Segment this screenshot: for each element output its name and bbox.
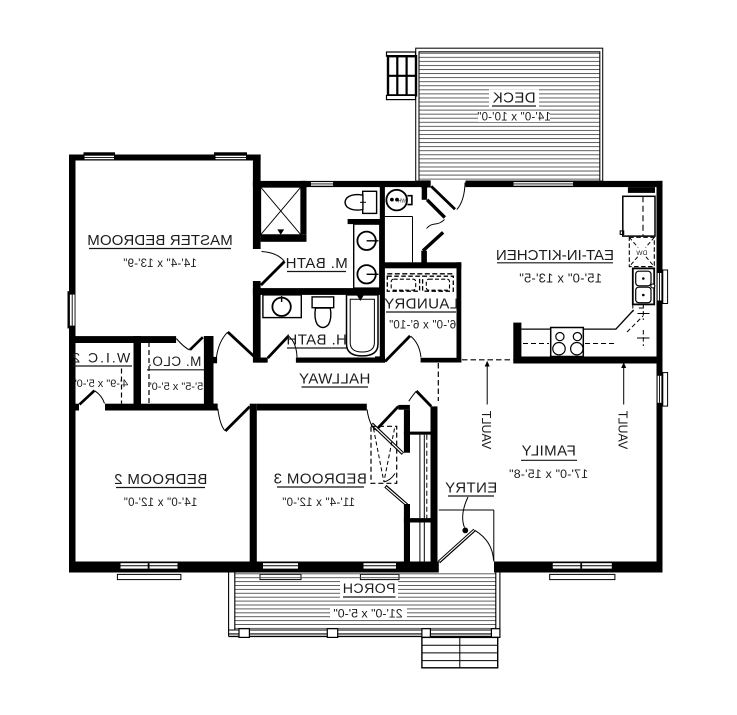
svg-text:VAULT: VAULT bbox=[479, 410, 493, 449]
svg-text:15'-0" x 13'-5": 15'-0" x 13'-5" bbox=[519, 271, 602, 286]
svg-text:ENTRY: ENTRY bbox=[445, 480, 498, 497]
svg-text:4'-9" x 5'-0": 4'-9" x 5'-0" bbox=[73, 378, 129, 390]
svg-text:WH: WH bbox=[397, 199, 406, 205]
svg-text:14'-4" x 13'-9": 14'-4" x 13'-9" bbox=[123, 258, 197, 270]
svg-text:H. BATH: H. BATH bbox=[286, 332, 347, 349]
svg-text:5'-5" x 5'-0": 5'-5" x 5'-0" bbox=[148, 381, 204, 393]
svg-text:14'-0" x 12'-0": 14'-0" x 12'-0" bbox=[124, 497, 198, 509]
svg-text:EAT-IN-KITCHEN: EAT-IN-KITCHEN bbox=[496, 247, 614, 264]
svg-text:DW: DW bbox=[636, 250, 648, 257]
svg-text:11'-4" x 12'-0": 11'-4" x 12'-0" bbox=[282, 497, 355, 509]
svg-text:LAUNDRY: LAUNDRY bbox=[384, 296, 458, 313]
svg-text:M. BATH: M. BATH bbox=[285, 255, 348, 272]
svg-text:14'-0" x 10'-0": 14'-0" x 10'-0" bbox=[477, 112, 551, 124]
svg-text:BEDROOM 3: BEDROOM 3 bbox=[273, 471, 367, 488]
svg-text:HALLWAY: HALLWAY bbox=[299, 371, 371, 388]
svg-text:FAMILY: FAMILY bbox=[521, 443, 576, 460]
svg-text:PORCH: PORCH bbox=[342, 581, 395, 597]
svg-text:6'-0" x 6'-10": 6'-0" x 6'-10" bbox=[389, 320, 456, 332]
svg-text:MASTER BEDROOM: MASTER BEDROOM bbox=[87, 232, 233, 249]
svg-text:M. CLO.: M. CLO. bbox=[148, 354, 202, 369]
svg-text:21'-0" x 5'-0": 21'-0" x 5'-0" bbox=[333, 607, 402, 621]
svg-text:W.I.C 2: W.I.C 2 bbox=[70, 350, 130, 366]
svg-text:BEDROOM 2: BEDROOM 2 bbox=[114, 471, 208, 488]
svg-text:VAULT: VAULT bbox=[615, 410, 629, 449]
svg-text:DECK: DECK bbox=[492, 90, 535, 107]
svg-text:17'-0" x 15'-8": 17'-0" x 15'-8" bbox=[509, 467, 588, 481]
